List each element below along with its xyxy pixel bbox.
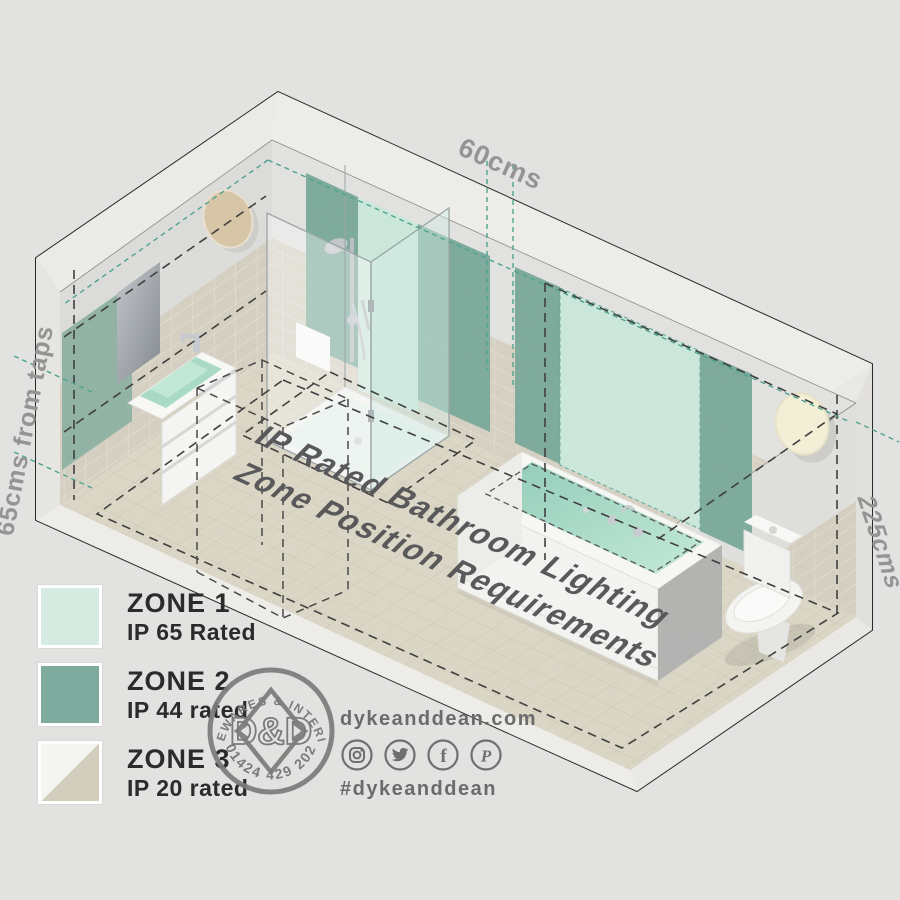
zone3-swatch: [38, 741, 102, 804]
twitter-icon: [383, 738, 417, 772]
facebook-icon: f: [426, 738, 460, 772]
zone1-label: ZONE 1: [127, 588, 256, 619]
social-icons: f P: [340, 738, 537, 772]
hashtag-text: #dykeanddean: [340, 778, 537, 801]
dyke-and-dean-stamp: HOMEWARES & INTERIORS 01424 429 202 D&D: [204, 664, 338, 798]
website-text: dykeanddean.com: [340, 708, 537, 731]
zone1-rating: IP 65 Rated: [127, 619, 256, 645]
zone1-swatch: [38, 585, 102, 648]
svg-text:f: f: [440, 746, 447, 767]
pinterest-icon: P: [469, 738, 503, 772]
footer: dykeanddean.com f P #dykeanddean: [340, 708, 537, 801]
stamp-monogram: D&D: [230, 711, 312, 753]
instagram-icon: [340, 738, 374, 772]
svg-text:P: P: [480, 747, 492, 766]
zone2-swatch: [38, 663, 102, 726]
legend-row-zone1: ZONE 1 IP 65 Rated: [38, 585, 256, 648]
bathroom-lighting-poster: 60cms 65cms from taps 225cms IP Rated Ba…: [0, 0, 900, 900]
